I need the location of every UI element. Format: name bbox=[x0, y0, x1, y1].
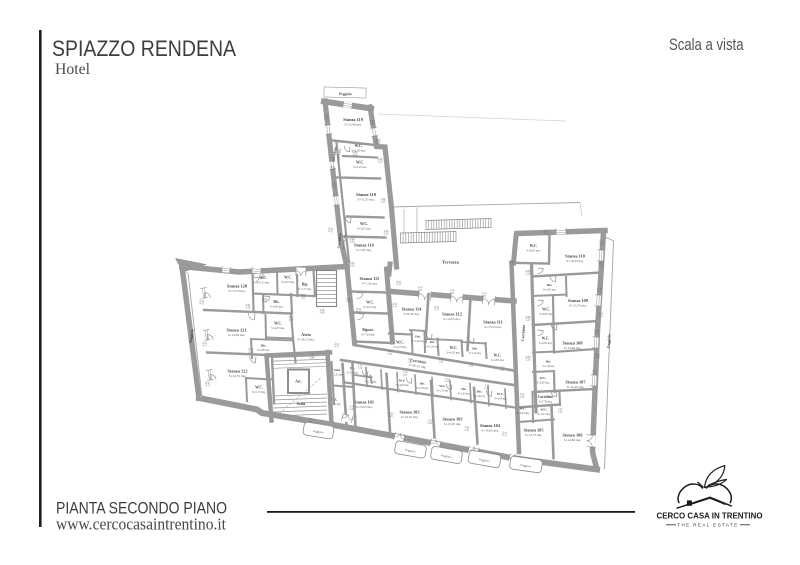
svg-text:S=4,85 mq.: S=4,85 mq. bbox=[491, 358, 505, 362]
svg-text:Scala a vista: Scala a vista bbox=[669, 36, 744, 54]
svg-text:2,20: 2,20 bbox=[544, 233, 549, 236]
svg-text:Stanza 108: Stanza 108 bbox=[563, 341, 583, 346]
svg-text:Anti.: Anti. bbox=[333, 368, 340, 372]
svg-text:Dis.: Dis. bbox=[415, 335, 421, 339]
svg-text:Stanza 121: Stanza 121 bbox=[227, 328, 247, 333]
svg-text:Stanza 104: Stanza 104 bbox=[480, 423, 501, 428]
svg-text:Stanza 102: Stanza 102 bbox=[400, 410, 420, 415]
svg-text:2,20: 2,20 bbox=[249, 351, 254, 354]
svg-text:2,20: 2,20 bbox=[510, 263, 515, 266]
svg-text:Stanza 110: Stanza 110 bbox=[565, 254, 585, 259]
svg-text:2,20: 2,20 bbox=[384, 233, 389, 236]
svg-text:Dis.: Dis. bbox=[477, 390, 482, 394]
svg-text:W.C.: W.C. bbox=[530, 244, 538, 248]
svg-text:Hotel: Hotel bbox=[55, 61, 91, 78]
svg-text:S=1,05 mq.: S=1,05 mq. bbox=[416, 387, 428, 390]
svg-text:Stanza 105: Stanza 105 bbox=[524, 428, 544, 433]
svg-text:S=4,05 mq.: S=4,05 mq. bbox=[396, 384, 409, 387]
svg-text:Stanza 119: Stanza 119 bbox=[343, 117, 363, 122]
svg-text:Stanza 118: Stanza 118 bbox=[356, 192, 376, 197]
svg-text:S=2,05 mq.: S=2,05 mq. bbox=[543, 289, 556, 292]
svg-text:Poggiolo: Poggiolo bbox=[607, 334, 612, 348]
svg-text:Stanza 103: Stanza 103 bbox=[443, 417, 463, 422]
svg-text:S=2,05 mq.: S=2,05 mq. bbox=[538, 413, 551, 416]
svg-text:S=4,05 mq.: S=4,05 mq. bbox=[539, 341, 553, 345]
svg-text:W.C.: W.C. bbox=[439, 384, 446, 388]
svg-text:Stanza 106: Stanza 106 bbox=[563, 433, 584, 438]
svg-text:S=1,30 mq.: S=1,30 mq. bbox=[469, 352, 482, 355]
svg-text:S=1,40 mq.: S=1,40 mq. bbox=[473, 395, 485, 398]
svg-text:Dis.: Dis. bbox=[546, 360, 552, 364]
svg-text:Stanza 122: Stanza 122 bbox=[228, 369, 248, 374]
svg-text:W.C.: W.C. bbox=[519, 407, 526, 411]
svg-text:S=2,60 mq.: S=2,60 mq. bbox=[537, 382, 550, 385]
svg-text:S=1,05 mq.: S=1,05 mq. bbox=[458, 393, 470, 396]
svg-text:2,20: 2,20 bbox=[596, 329, 599, 334]
svg-text:S=3,25 mq.: S=3,25 mq. bbox=[363, 305, 377, 309]
svg-text:S=4,75 mq.: S=4,75 mq. bbox=[393, 345, 407, 349]
svg-text:THE REAL ESTATE: THE REAL ESTATE bbox=[677, 522, 738, 527]
svg-text:S=2,05 mq.: S=2,05 mq. bbox=[517, 412, 530, 415]
svg-text:2,20: 2,20 bbox=[600, 261, 603, 266]
svg-text:2,20: 2,20 bbox=[600, 312, 603, 317]
svg-text:Stanza 112: Stanza 112 bbox=[442, 312, 462, 317]
svg-text:Stanza 107: Stanza 107 bbox=[566, 380, 587, 385]
svg-text:W.C.: W.C. bbox=[366, 301, 374, 305]
svg-text:S=5,15 mq.: S=5,15 mq. bbox=[252, 390, 266, 394]
svg-text:2,20: 2,20 bbox=[381, 201, 386, 204]
svg-text:Stanza 120: Stanza 120 bbox=[227, 284, 247, 289]
svg-text:2,20: 2,20 bbox=[376, 142, 381, 145]
svg-text:W.C.: W.C. bbox=[542, 308, 550, 312]
svg-text:S=1,15 mq.: S=1,15 mq. bbox=[436, 390, 448, 393]
svg-text:S=1,20 mq.: S=1,20 mq. bbox=[412, 340, 425, 343]
svg-text:S=7,70 mq.: S=7,70 mq. bbox=[539, 400, 553, 404]
svg-text:2,20: 2,20 bbox=[599, 287, 602, 292]
svg-text:W.C.: W.C. bbox=[274, 322, 282, 326]
svg-text:S=1,75 mq.: S=1,75 mq. bbox=[298, 287, 312, 291]
svg-text:S=3,05 mq.: S=3,05 mq. bbox=[270, 305, 284, 309]
svg-text:W.C.: W.C. bbox=[542, 337, 550, 341]
svg-text:Terrazza: Terrazza bbox=[442, 260, 459, 265]
svg-text:W.C.: W.C. bbox=[360, 222, 368, 226]
svg-text:W.C.: W.C. bbox=[450, 346, 458, 350]
svg-text:2,20: 2,20 bbox=[350, 241, 355, 244]
svg-text:Dis.: Dis. bbox=[261, 344, 267, 348]
svg-text:2,20: 2,20 bbox=[526, 273, 531, 276]
svg-text:W.C.: W.C. bbox=[284, 276, 292, 280]
svg-text:Poggiolo: Poggiolo bbox=[339, 92, 352, 96]
svg-text:W.C.: W.C. bbox=[494, 354, 502, 358]
svg-text:S=1,40 mq.: S=1,40 mq. bbox=[542, 365, 555, 368]
svg-text:W.C.: W.C. bbox=[399, 379, 406, 383]
svg-text:2,20: 2,20 bbox=[526, 359, 531, 362]
svg-text:Stanza 101: Stanza 101 bbox=[354, 400, 374, 405]
svg-text:2,20: 2,20 bbox=[353, 154, 358, 157]
svg-text:SPIAZZO RENDENA: SPIAZZO RENDENA bbox=[52, 36, 236, 61]
svg-text:2,20: 2,20 bbox=[594, 369, 597, 374]
svg-text:2,20: 2,20 bbox=[246, 307, 251, 310]
svg-text:Dis.: Dis. bbox=[274, 300, 280, 304]
svg-text:2,20: 2,20 bbox=[370, 123, 375, 126]
svg-text:Stanza 109: Stanza 109 bbox=[568, 298, 588, 303]
svg-text:2,20: 2,20 bbox=[301, 297, 306, 300]
svg-text:W.C.: W.C. bbox=[539, 376, 546, 380]
svg-text:S=4,05 mq.: S=4,05 mq. bbox=[271, 326, 285, 330]
svg-text:2,20: 2,20 bbox=[378, 161, 383, 164]
svg-text:S=4,85 mq.: S=4,85 mq. bbox=[539, 312, 553, 316]
svg-text:S=4,15 mq.: S=4,15 mq. bbox=[256, 281, 270, 285]
svg-text:www.cercocasaintrentino.it: www.cercocasaintrentino.it bbox=[56, 515, 226, 534]
svg-text:Dis.: Dis. bbox=[430, 340, 436, 344]
svg-text:S=2,00 mq.: S=2,00 mq. bbox=[257, 349, 270, 352]
svg-text:Dis.: Dis. bbox=[420, 382, 425, 386]
svg-text:2,20: 2,20 bbox=[526, 319, 531, 322]
svg-text:Dis.: Dis. bbox=[461, 387, 466, 391]
svg-text:S=4,55 mq.: S=4,55 mq. bbox=[281, 280, 295, 284]
svg-text:Rip.: Rip. bbox=[302, 283, 309, 287]
svg-text:2,40: 2,40 bbox=[320, 312, 325, 315]
svg-text:Asc.: Asc. bbox=[295, 380, 302, 384]
svg-text:S=1,10 mq.: S=1,10 mq. bbox=[426, 346, 439, 349]
svg-text:2,20: 2,20 bbox=[601, 240, 604, 245]
svg-text:W.C.: W.C. bbox=[540, 408, 547, 412]
svg-text:Ripost.: Ripost. bbox=[362, 328, 374, 332]
svg-text:Stanza 114: Stanza 114 bbox=[402, 307, 423, 312]
svg-text:W.C.: W.C. bbox=[497, 392, 504, 396]
svg-text:Dis.: Dis. bbox=[547, 283, 553, 287]
svg-text:CERCO CASA IN TRENTINO: CERCO CASA IN TRENTINO bbox=[657, 511, 764, 521]
svg-text:W.C.: W.C. bbox=[255, 386, 263, 390]
svg-text:2,20: 2,20 bbox=[260, 277, 265, 280]
svg-text:Stanza 115: Stanza 115 bbox=[360, 276, 380, 281]
svg-text:2,20: 2,20 bbox=[350, 265, 355, 268]
svg-text:W.C.: W.C. bbox=[396, 341, 404, 345]
svg-text:W.C.: W.C. bbox=[356, 161, 364, 165]
svg-text:2,20: 2,20 bbox=[597, 353, 600, 358]
svg-text:Stanza 116: Stanza 116 bbox=[354, 243, 375, 248]
svg-text:Dis.: Dis. bbox=[472, 347, 478, 351]
svg-text:Stanza 111: Stanza 111 bbox=[483, 320, 502, 325]
svg-text:W.C.: W.C. bbox=[354, 144, 362, 148]
svg-text:S=4,20 mq.: S=4,20 mq. bbox=[447, 351, 461, 355]
svg-text:Scala: Scala bbox=[297, 402, 306, 406]
svg-text:S=4,50 mq.: S=4,50 mq. bbox=[494, 398, 507, 401]
svg-text:Atrio: Atrio bbox=[301, 332, 311, 337]
svg-text:Corridoio: Corridoio bbox=[538, 395, 553, 399]
